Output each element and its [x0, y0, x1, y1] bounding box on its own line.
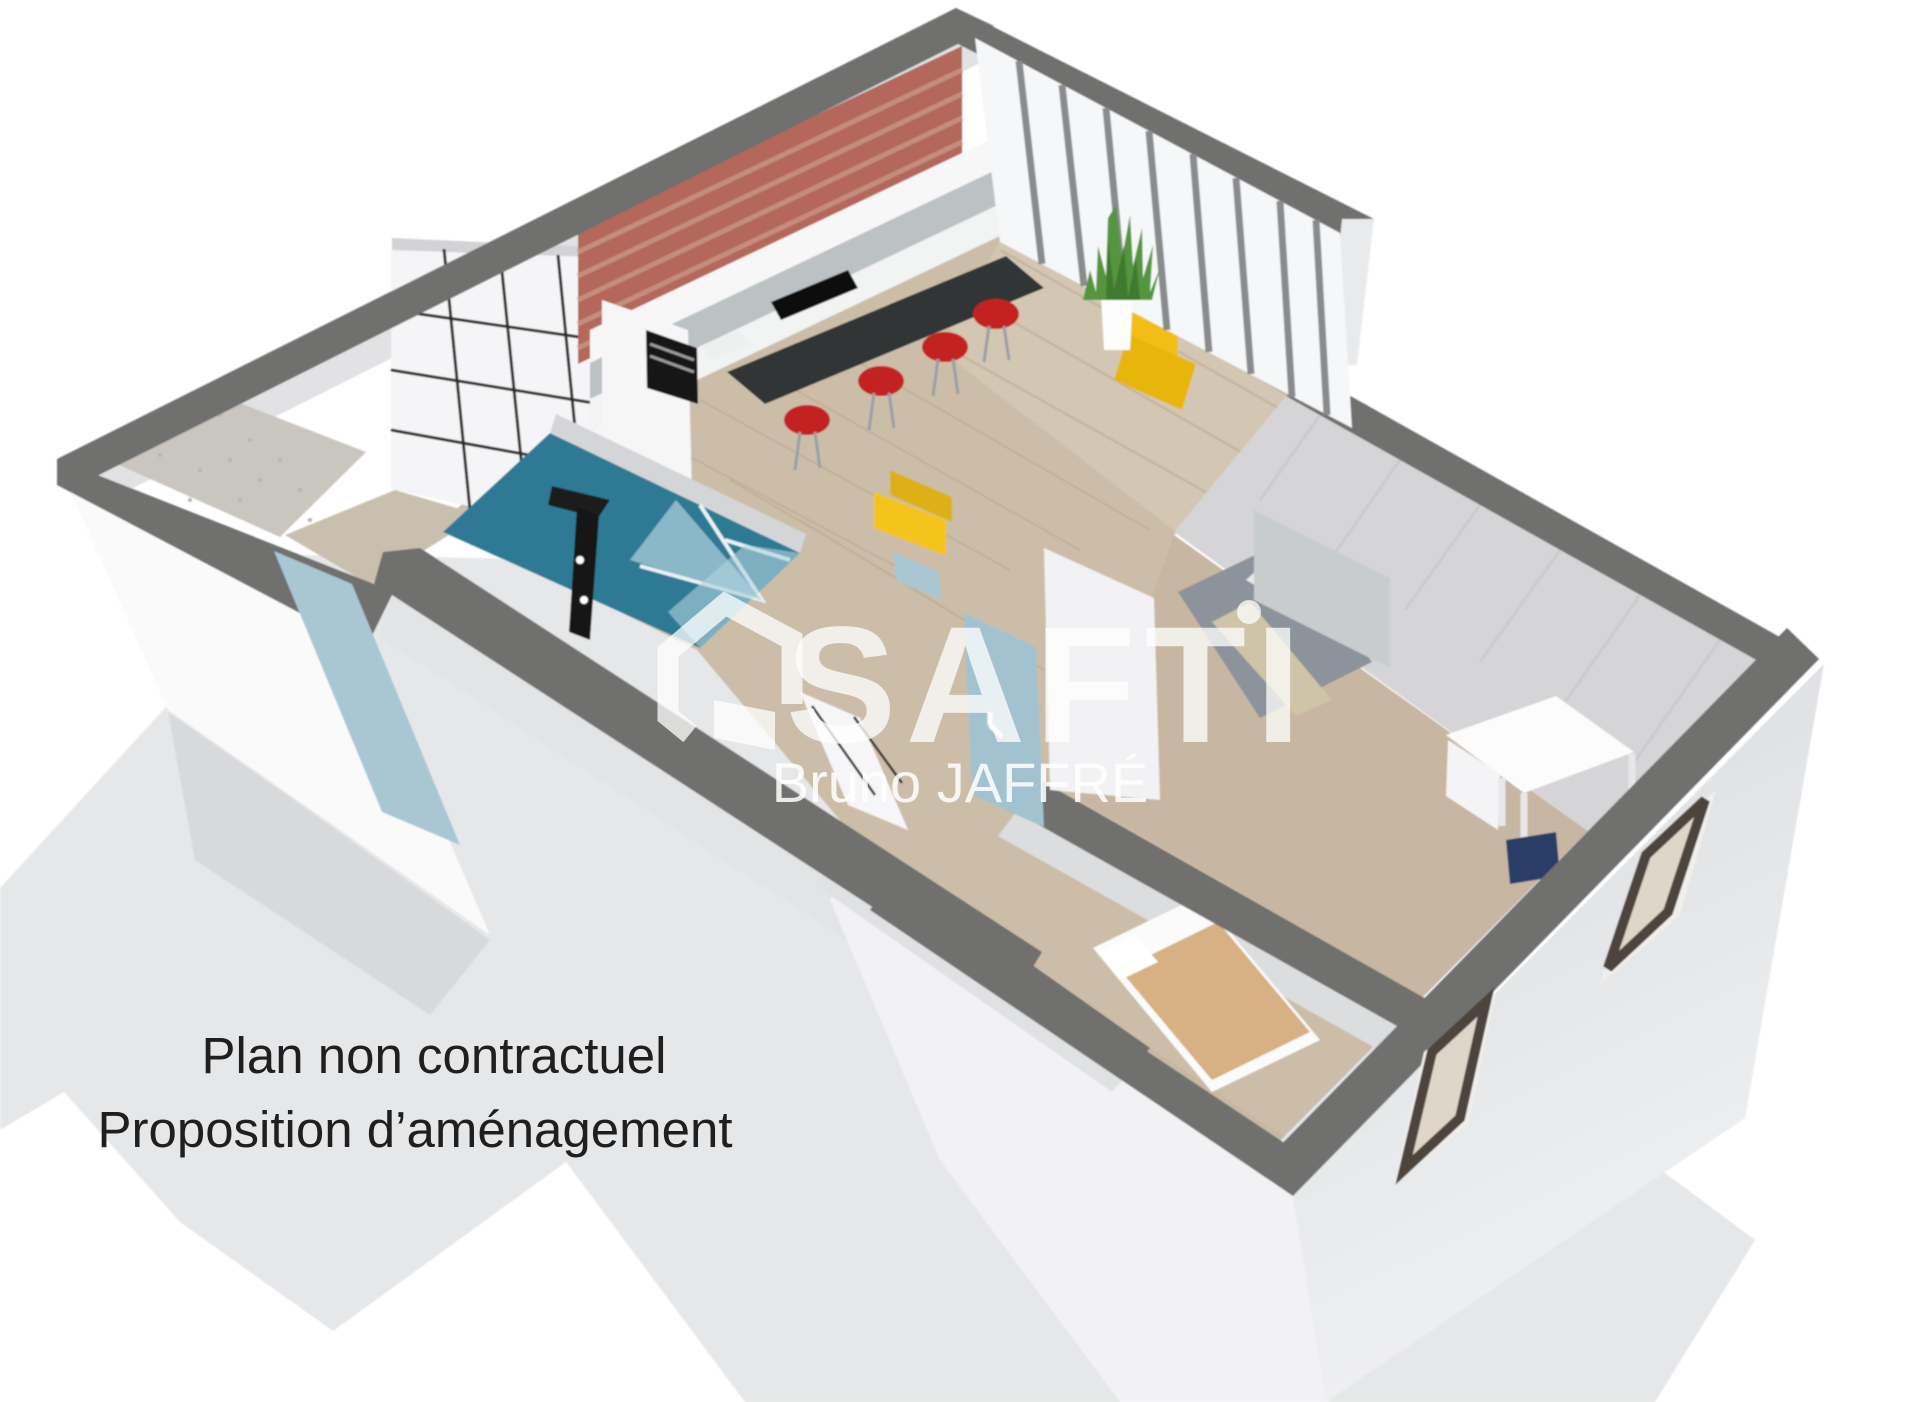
svg-text:Proposition d’aménagement: Proposition d’aménagement — [97, 1101, 732, 1158]
svg-text:Bruno JAFFRÉ: Bruno JAFFRÉ — [772, 751, 1149, 814]
svg-text:Plan non contractuel: Plan non contractuel — [202, 1027, 667, 1084]
